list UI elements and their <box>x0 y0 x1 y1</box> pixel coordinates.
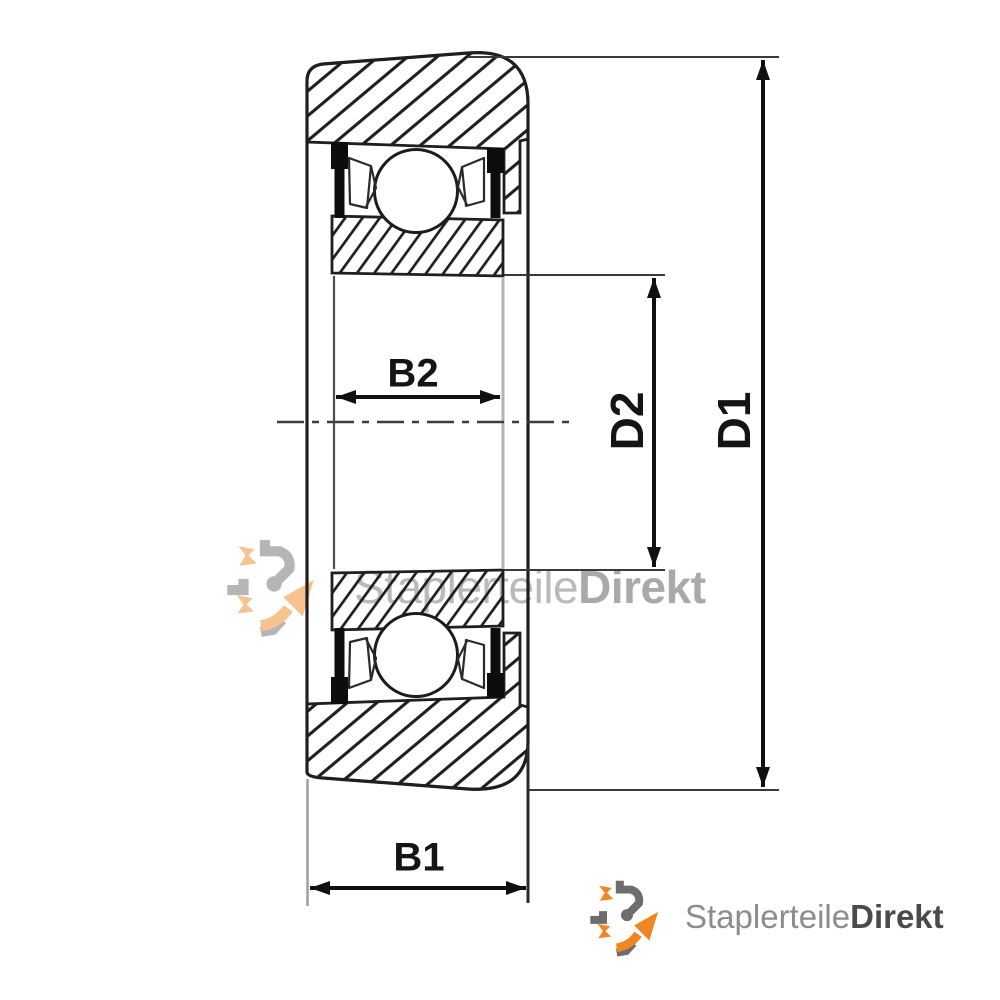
logo-brand-bold: Direkt <box>850 898 944 935</box>
seal-top-right <box>487 148 504 218</box>
bearing-cross-section-drawing <box>0 0 1000 1000</box>
dimension-label-d1: D1 <box>707 392 761 451</box>
seal-bottom-right <box>487 628 504 698</box>
dimension-label-b2: B2 <box>387 352 438 397</box>
logo-brand-text: StaplerteileDirekt <box>685 898 944 936</box>
seal-top-left <box>331 142 348 218</box>
ball-top <box>375 150 458 233</box>
product-diagram-page: StaplerteileDirekt <box>0 0 1000 1000</box>
logo-brand-regular: Staplerteile <box>685 898 850 935</box>
ball-bottom <box>375 614 458 697</box>
brand-logo: StaplerteileDirekt <box>583 874 944 960</box>
dimension-label-d2: D2 <box>600 392 654 451</box>
dimension-label-b1: B1 <box>393 836 444 881</box>
logo-gear-arrow-icon <box>583 876 663 959</box>
seal-bottom-left <box>331 628 348 704</box>
